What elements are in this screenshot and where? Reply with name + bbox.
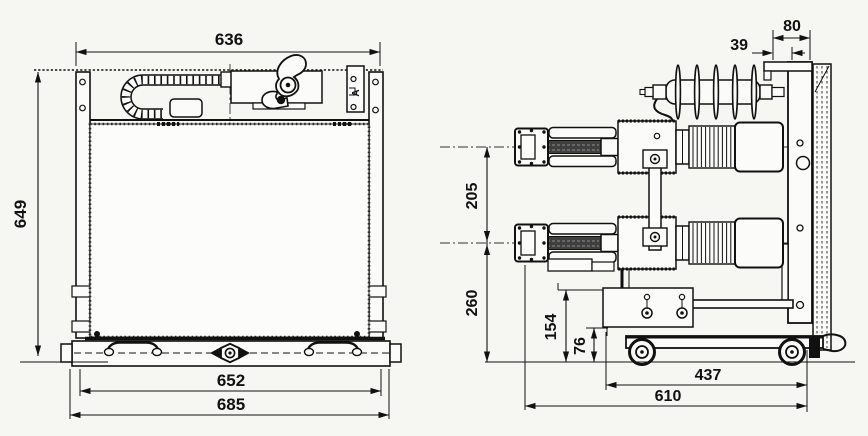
dim-label-top-offset: 39 bbox=[730, 37, 748, 54]
base-bolt-right bbox=[354, 331, 360, 337]
dim-bracket-height: 154 bbox=[543, 290, 569, 362]
dim-label-wheelbase: 437 bbox=[695, 367, 722, 384]
top-rail-bracket bbox=[764, 62, 812, 71]
base-end-cap-right bbox=[390, 344, 401, 362]
base-bolt-left bbox=[94, 331, 100, 337]
frame-rail-left bbox=[72, 72, 90, 338]
dim-label-beam-height: 76 bbox=[572, 337, 589, 355]
cart-wheel-front bbox=[630, 340, 655, 365]
dim-overall-depth: 610 bbox=[525, 388, 807, 409]
dim-label-front-base-width: 652 bbox=[217, 371, 245, 390]
cart-stop-block bbox=[809, 338, 820, 358]
base-end-cap-left bbox=[61, 344, 72, 362]
bracket-label: A bbox=[351, 89, 362, 96]
dim-pole-spacing: 205 260 bbox=[464, 147, 490, 362]
dim-label-front-top-width: 636 bbox=[215, 30, 243, 49]
dim-label-overall-depth: 610 bbox=[655, 388, 682, 405]
dim-beam-height: 76 bbox=[572, 328, 597, 362]
front-panel bbox=[90, 124, 369, 337]
dim-label-bracket-height: 154 bbox=[543, 314, 560, 341]
interlock-bracket: A bbox=[347, 66, 364, 112]
dim-label-top-depth: 80 bbox=[783, 18, 801, 35]
insulated-link bbox=[643, 150, 667, 250]
support-insulator bbox=[640, 65, 784, 122]
front-view: A bbox=[11, 30, 401, 419]
operating-mechanism bbox=[231, 55, 322, 109]
dim-front-top-width: 636 bbox=[76, 30, 380, 66]
dim-label-lower-pole-height: 260 bbox=[464, 290, 481, 317]
dimensional-drawing: A bbox=[0, 0, 868, 436]
rear-guide-rail bbox=[813, 64, 831, 350]
dim-label-pole-spacing: 205 bbox=[464, 183, 481, 210]
frame-column bbox=[764, 62, 812, 323]
dim-label-front-height: 649 bbox=[11, 200, 30, 228]
side-view: 80 39 205 260 154 76 bbox=[440, 18, 855, 412]
dim-label-front-overall-width: 685 bbox=[217, 395, 245, 414]
dim-side-top-offset: 39 bbox=[730, 37, 805, 56]
dim-front-base-width: 652 bbox=[80, 369, 381, 396]
frame-rail-right bbox=[368, 72, 386, 338]
conduit-junction-box bbox=[170, 99, 202, 117]
cart-wheel-rear bbox=[780, 340, 805, 365]
dim-front-height: 649 bbox=[11, 72, 41, 356]
flexible-conduit bbox=[126, 72, 234, 117]
dim-side-top-depth: 80 bbox=[773, 18, 810, 60]
